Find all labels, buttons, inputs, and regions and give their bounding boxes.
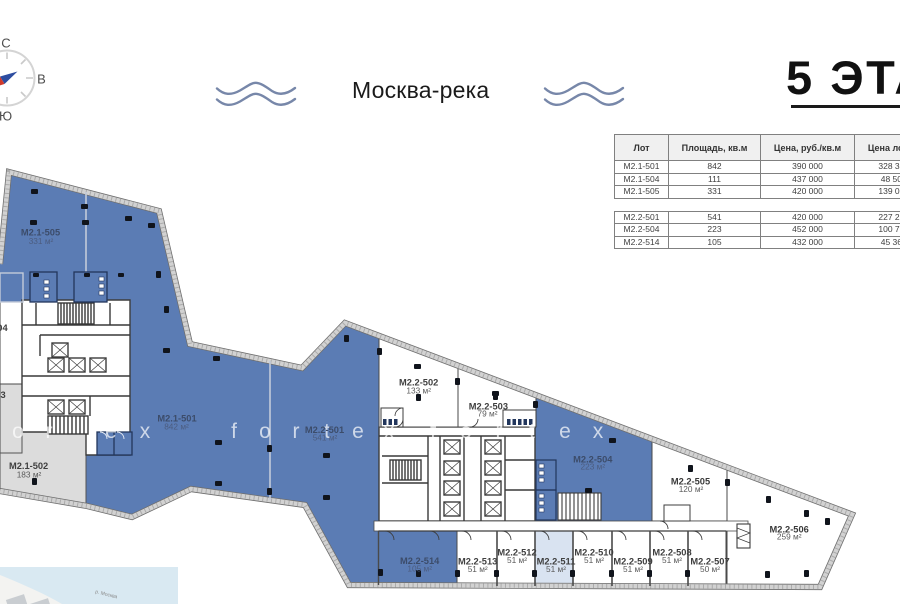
svg-text:541 м²: 541 м² — [313, 432, 338, 442]
svg-text:223 м²: 223 м² — [580, 462, 605, 472]
svg-text:М2.1-504: М2.1-504 — [0, 323, 8, 333]
svg-text:842 м²: 842 м² — [164, 422, 189, 432]
svg-text:o: o — [259, 420, 271, 443]
svg-text:51 м²: 51 м² — [623, 564, 643, 574]
svg-text:o: o — [12, 420, 24, 443]
svg-text:e: e — [352, 420, 364, 443]
svg-text:e: e — [105, 420, 117, 443]
svg-text:В: В — [37, 72, 46, 87]
svg-text:r: r — [46, 420, 53, 443]
svg-text:105 м²: 105 м² — [407, 563, 432, 573]
svg-text:51 м²: 51 м² — [507, 555, 527, 565]
svg-text:51 м²: 51 м² — [662, 555, 682, 565]
svg-text:133 м²: 133 м² — [406, 386, 431, 396]
svg-text:51 м²: 51 м² — [584, 555, 604, 565]
svg-text:51 м²: 51 м² — [468, 564, 488, 574]
svg-text:f: f — [430, 420, 436, 443]
svg-text:183 м²: 183 м² — [17, 470, 42, 480]
svg-text:79 м²: 79 м² — [477, 409, 497, 419]
svg-text:o: o — [460, 420, 472, 443]
svg-text:e: e — [559, 420, 571, 443]
svg-text:М2.1-503: М2.1-503 — [0, 390, 6, 400]
svg-text:f: f — [231, 420, 237, 443]
svg-text:x: x — [384, 420, 395, 443]
svg-text:r: r — [293, 420, 300, 443]
svg-text:С: С — [1, 36, 10, 51]
svg-text:120 м²: 120 м² — [679, 484, 704, 494]
svg-text:259 м²: 259 м² — [777, 531, 802, 541]
svg-text:Ю: Ю — [0, 109, 12, 124]
svg-text:t: t — [529, 420, 535, 443]
svg-text:r: r — [496, 420, 503, 443]
svg-text:x: x — [593, 420, 604, 443]
svg-text:331 м²: 331 м² — [29, 236, 54, 246]
svg-text:x: x — [140, 420, 151, 443]
svg-text:50 м²: 50 м² — [700, 564, 720, 574]
svg-text:51 м²: 51 м² — [546, 564, 566, 574]
